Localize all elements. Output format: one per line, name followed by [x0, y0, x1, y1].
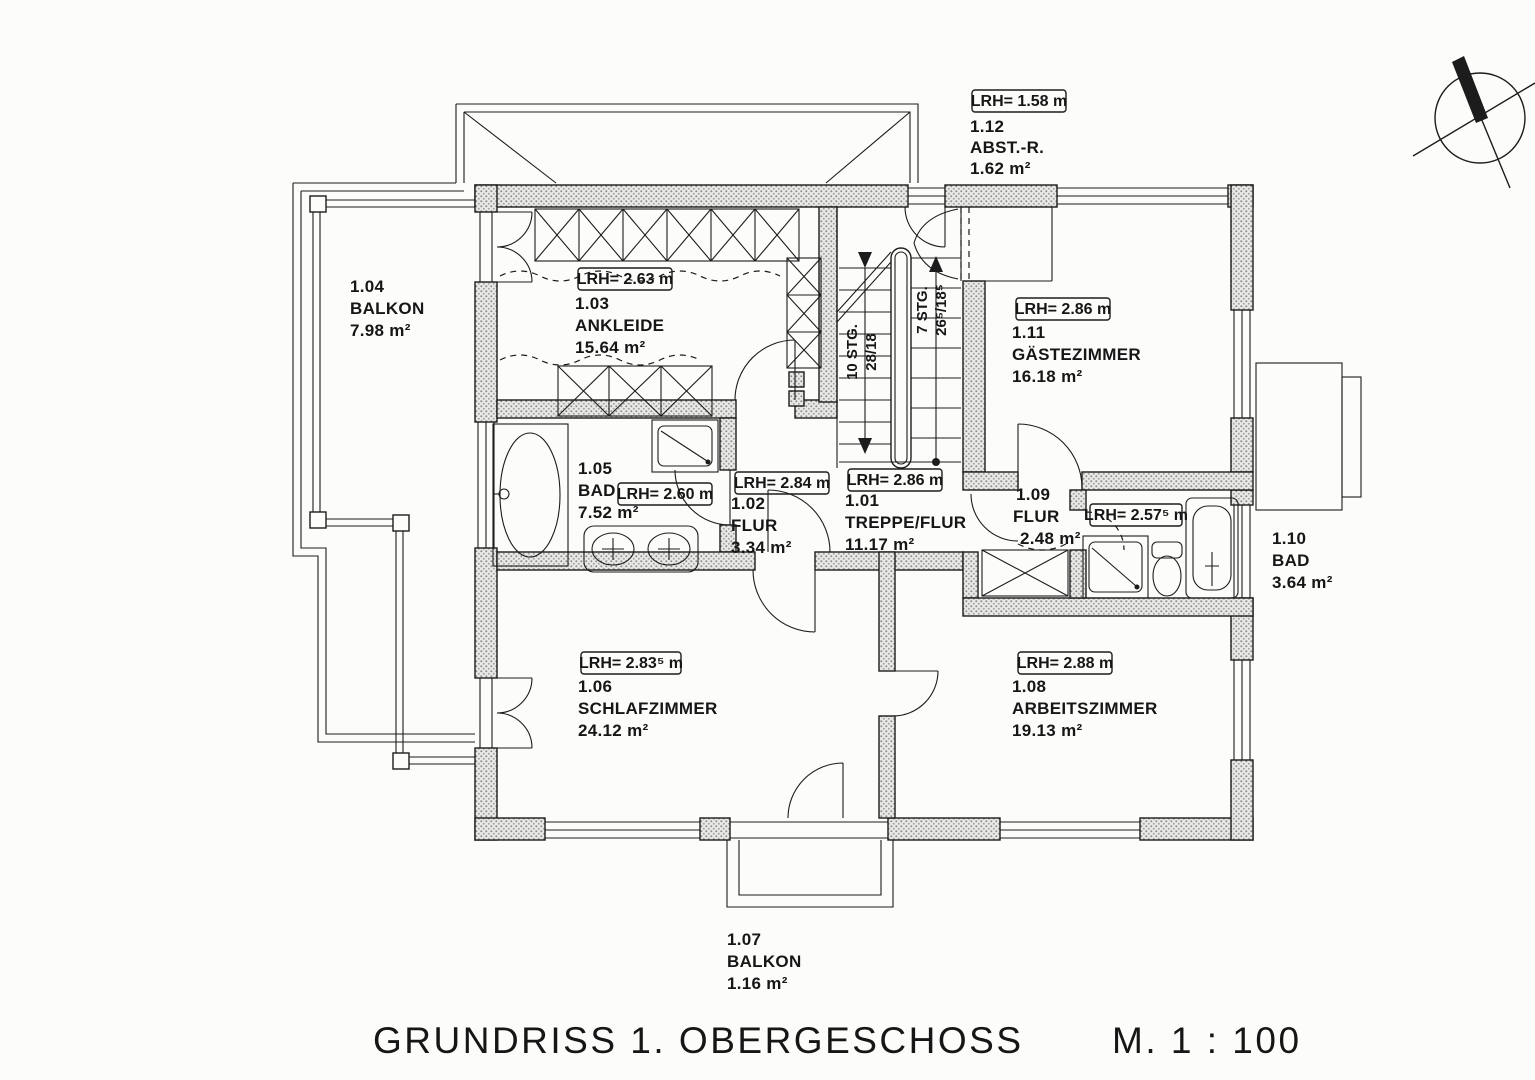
lrh-101: LRH= 2.86 m	[847, 472, 943, 489]
room-105-area: 7.52 m²	[578, 503, 639, 522]
room-101-area: 11.17 m²	[845, 535, 915, 554]
stair-left-steps: 10 STG.	[844, 324, 861, 380]
label-102: LRH= 2.84 m 1.02 FLUR 3.34 m²	[731, 472, 830, 557]
stair-right-ratio: 26⁵/18⁵	[933, 284, 950, 336]
room-108-name: ARBEITSZIMMER	[1012, 699, 1158, 718]
room-101-name: TREPPE/FLUR	[845, 513, 966, 532]
room-109-area: 2.48 m²	[1020, 529, 1081, 548]
lrh-108: LRH= 2.88 m	[1017, 655, 1113, 672]
room-110-area: 3.64 m²	[1272, 573, 1333, 592]
room-103-id: 1.03	[575, 294, 609, 313]
label-112: LRH= 1.58 m 1.12 ABST.-R. 1.62 m²	[970, 90, 1067, 178]
room-107-id: 1.07	[727, 930, 761, 949]
sheet-title: GRUNDRISS 1. OBERGESCHOSS	[373, 1020, 1024, 1061]
balcony-104-outline	[293, 183, 475, 769]
room-104-name: BALKON	[350, 299, 425, 318]
label-110: LRH= 2.57⁵ m 1.10 BAD 3.64 m²	[1084, 504, 1333, 592]
toilet-110	[1152, 542, 1182, 596]
room-101-id: 1.01	[845, 491, 879, 510]
room-105-id: 1.05	[578, 459, 612, 478]
stair-right-steps: 7 STG.	[914, 286, 931, 334]
balcony-107-outline	[727, 840, 893, 907]
wardrobe-side-strip	[787, 258, 821, 406]
lrh-111: LRH= 2.86 m	[1015, 301, 1111, 318]
floorplan-drawing: 10 STG. 28/18 7 STG. 26⁵/18⁵	[0, 0, 1535, 1080]
cupboard-109	[982, 550, 1068, 596]
label-105: 1.05 BAD 7.52 m² LRH= 2.60 m	[578, 459, 713, 522]
stair-label-right: 7 STG. 26⁵/18⁵	[914, 284, 950, 336]
room-106-id: 1.06	[578, 677, 612, 696]
room-109-id: 1.09	[1016, 485, 1050, 504]
room-102-name: FLUR	[731, 516, 778, 535]
room-110-id: 1.10	[1272, 529, 1306, 548]
staircase: 10 STG. 28/18 7 STG. 26⁵/18⁵	[837, 207, 961, 468]
room-102-id: 1.02	[731, 494, 765, 513]
stair-left-ratio: 28/18	[863, 333, 880, 371]
label-106: LRH= 2.83⁵ m 1.06 SCHLAFZIMMER 24.12 m²	[578, 652, 718, 740]
title-block: GRUNDRISS 1. OBERGESCHOSS M. 1 : 100	[373, 1020, 1302, 1061]
room-107-name: BALKON	[727, 952, 802, 971]
north-arrow-icon	[1413, 56, 1535, 188]
bay-window-outline	[1256, 363, 1361, 510]
lrh-103: LRH= 2.63 m	[577, 271, 673, 288]
room-103-area: 15.64 m²	[575, 338, 645, 357]
roof-outline	[456, 104, 918, 183]
sheet-scale: M. 1 : 100	[1112, 1020, 1302, 1061]
room-104-id: 1.04	[350, 277, 385, 296]
room-110-name: BAD	[1272, 551, 1310, 570]
room-102-area: 3.34 m²	[731, 538, 792, 557]
shower-105	[652, 420, 718, 472]
label-108: LRH= 2.88 m 1.08 ARBEITSZIMMER 19.13 m²	[1012, 652, 1158, 740]
room-111-name: GÄSTEZIMMER	[1012, 345, 1141, 364]
room-108-area: 19.13 m²	[1012, 721, 1082, 740]
wardrobe-top-row	[535, 209, 799, 261]
room-106-area: 24.12 m²	[578, 721, 648, 740]
bathtub-105	[493, 424, 568, 566]
lrh-112: LRH= 1.58 m	[971, 93, 1067, 110]
label-107: 1.07 BALKON 1.16 m²	[727, 930, 802, 993]
label-103: LRH= 2.63 m 1.03 ANKLEIDE 15.64 m²	[575, 268, 673, 357]
stair-label-left: 10 STG. 28/18	[844, 324, 880, 380]
lrh-105: LRH= 2.60 m	[617, 486, 713, 503]
room-103-name: ANKLEIDE	[575, 316, 664, 335]
room-109-name: FLUR	[1013, 507, 1060, 526]
room-112-id: 1.12	[970, 117, 1004, 136]
label-101: LRH= 2.86 m 1.01 TREPPE/FLUR 11.17 m²	[845, 469, 966, 554]
bathtub-110	[1186, 498, 1238, 598]
lrh-106: LRH= 2.83⁵ m	[579, 655, 683, 672]
room-105-name: BAD	[578, 481, 616, 500]
room-108-id: 1.08	[1012, 677, 1046, 696]
floorplan-sheet: 10 STG. 28/18 7 STG. 26⁵/18⁵	[0, 0, 1535, 1080]
room-112-area: 1.62 m²	[970, 159, 1031, 178]
shower-110	[1083, 536, 1148, 598]
room-107-area: 1.16 m²	[727, 974, 788, 993]
label-104: 1.04 BALKON 7.98 m²	[350, 277, 425, 340]
label-111: LRH= 2.86 m 1.11 GÄSTEZIMMER 16.18 m²	[1012, 298, 1141, 386]
room-104-area: 7.98 m²	[350, 321, 411, 340]
lrh-110: LRH= 2.57⁵ m	[1084, 507, 1188, 524]
room-112-name: ABST.-R.	[970, 138, 1044, 157]
room-106-name: SCHLAFZIMMER	[578, 699, 718, 718]
lrh-102: LRH= 2.84 m	[734, 475, 830, 492]
room-111-area: 16.18 m²	[1012, 367, 1082, 386]
room-111-id: 1.11	[1012, 323, 1045, 342]
